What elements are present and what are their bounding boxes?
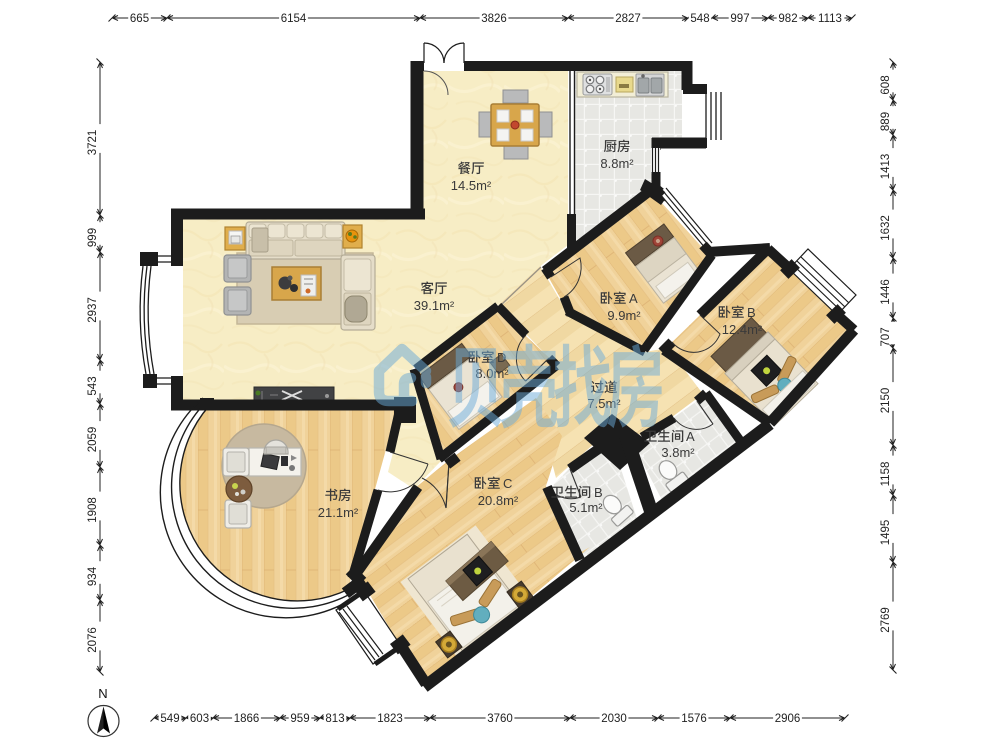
svg-text:813: 813 (325, 713, 344, 725)
svg-text:549: 549 (160, 713, 179, 725)
svg-text:1823: 1823 (377, 713, 403, 725)
svg-text:2030: 2030 (601, 713, 627, 725)
svg-text:548: 548 (690, 13, 709, 25)
svg-text:1113: 1113 (818, 13, 842, 25)
svg-text:2827: 2827 (615, 13, 641, 25)
svg-text:1446: 1446 (880, 279, 892, 305)
svg-text:934: 934 (87, 566, 99, 586)
svg-text:3.8m²: 3.8m² (661, 445, 695, 460)
svg-text:9.9m²: 9.9m² (607, 308, 641, 323)
svg-text:2059: 2059 (87, 427, 99, 453)
svg-text:1576: 1576 (681, 713, 707, 725)
svg-text:B: B (747, 305, 756, 320)
svg-text:707: 707 (880, 327, 892, 346)
svg-text:543: 543 (87, 376, 99, 395)
svg-text:1632: 1632 (880, 215, 892, 241)
svg-text:982: 982 (778, 13, 797, 25)
svg-text:6154: 6154 (281, 13, 307, 25)
svg-text:2906: 2906 (775, 713, 801, 725)
svg-text:3721: 3721 (87, 130, 99, 156)
svg-text:603: 603 (190, 713, 209, 725)
svg-text:608: 608 (880, 75, 892, 94)
svg-text:A: A (686, 429, 695, 444)
svg-text:B: B (594, 485, 603, 500)
svg-text:665: 665 (130, 13, 149, 25)
svg-text:A: A (629, 291, 638, 306)
svg-text:997: 997 (730, 13, 749, 25)
svg-text:N: N (98, 686, 107, 701)
svg-text:2076: 2076 (87, 627, 99, 653)
svg-text:39.1m²: 39.1m² (414, 298, 455, 313)
svg-text:1158: 1158 (880, 462, 892, 487)
svg-text:2150: 2150 (880, 388, 892, 414)
svg-text:14.5m²: 14.5m² (451, 178, 492, 193)
svg-text:1866: 1866 (234, 713, 260, 725)
svg-text:2937: 2937 (87, 297, 99, 323)
svg-text:3826: 3826 (481, 13, 507, 25)
svg-text:12.4m²: 12.4m² (722, 322, 763, 337)
svg-text:889: 889 (880, 112, 892, 131)
svg-text:3760: 3760 (487, 713, 513, 725)
svg-text:21.1m²: 21.1m² (318, 505, 359, 520)
svg-text:C: C (503, 476, 512, 491)
svg-text:20.8m²: 20.8m² (478, 493, 519, 508)
svg-text:5.1m²: 5.1m² (569, 500, 603, 515)
svg-text:1495: 1495 (880, 520, 892, 546)
svg-text:959: 959 (290, 713, 309, 725)
svg-text:1413: 1413 (880, 154, 892, 180)
svg-text:2769: 2769 (880, 607, 892, 633)
svg-text:1908: 1908 (87, 497, 99, 523)
svg-text:999: 999 (87, 228, 99, 247)
svg-text:8.8m²: 8.8m² (600, 156, 634, 171)
